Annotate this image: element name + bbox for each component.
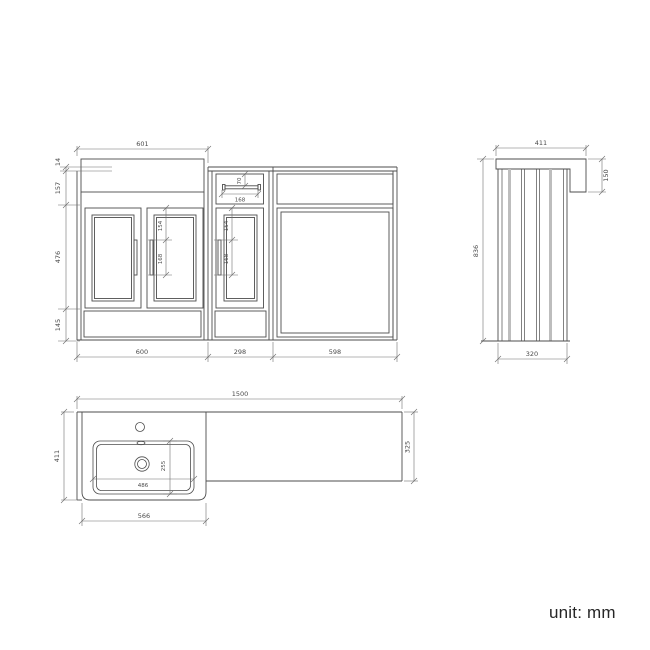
plan-dimension-lines	[61, 396, 418, 526]
dim-left-handle-length: 168	[158, 253, 164, 264]
front-right-unit	[277, 167, 397, 340]
dim-drawer-handle-offset: 70	[237, 177, 243, 184]
dim-front-top-panel-height: 157	[54, 182, 62, 194]
dim-plan-overall-width: 1500	[232, 390, 249, 398]
dim-plan-basin-depth: 411	[53, 450, 61, 462]
dim-front-plinth-height: 145	[54, 319, 62, 331]
dim-side-panel-depth: 320	[526, 350, 538, 358]
front-elevation-view	[77, 159, 397, 340]
dim-middle-handle-offset: 154	[224, 220, 230, 231]
dim-side-top-depth: 411	[535, 139, 547, 147]
technical-drawing: 601 14 157 476 145 600 298 598 154 168 7…	[0, 0, 650, 650]
dim-side-height: 836	[472, 245, 480, 257]
dim-side-worktop-drop: 150	[602, 169, 610, 181]
right-door-handle	[150, 240, 153, 275]
dim-front-worktop-height: 14	[54, 158, 62, 166]
left-plinth	[84, 311, 201, 337]
dim-plan-bowl-depth: 255	[161, 460, 167, 471]
front-left-unit	[77, 159, 208, 340]
side-elevation-view	[481, 159, 586, 341]
dim-plan-bowl-width: 486	[138, 483, 149, 489]
tongue-groove-lines	[502, 169, 564, 341]
tap-hole	[136, 423, 145, 432]
dim-front-middle-width: 298	[234, 348, 246, 356]
side-dimension-lines	[477, 145, 606, 364]
dim-front-right-width: 598	[329, 348, 341, 356]
dimension-diagram: 601 14 157 476 145 600 298 598 154 168 7…	[0, 0, 650, 650]
dim-middle-handle-length: 168	[224, 253, 230, 264]
right-top-panel	[277, 174, 393, 204]
right-door	[147, 208, 203, 308]
dim-plan-worktop-depth: 325	[404, 441, 412, 453]
middle-door-handle	[218, 240, 221, 275]
plan-view	[77, 412, 402, 500]
left-door-handle	[134, 240, 137, 275]
dim-left-handle-offset: 154	[158, 220, 164, 231]
left-door	[85, 208, 141, 308]
dim-front-left-width: 600	[136, 348, 148, 356]
waste-hole	[135, 457, 149, 471]
middle-plinth	[215, 311, 266, 337]
dim-front-door-height: 476	[54, 251, 62, 263]
worktop-front-panel	[81, 159, 204, 192]
right-door-panel	[277, 208, 393, 337]
dim-front-top-width: 601	[136, 140, 148, 148]
dim-plan-basin-width: 566	[138, 512, 150, 520]
unit-label: unit: mm	[549, 603, 649, 623]
front-middle-unit	[208, 167, 397, 340]
dim-drawer-handle-length: 168	[235, 198, 246, 204]
